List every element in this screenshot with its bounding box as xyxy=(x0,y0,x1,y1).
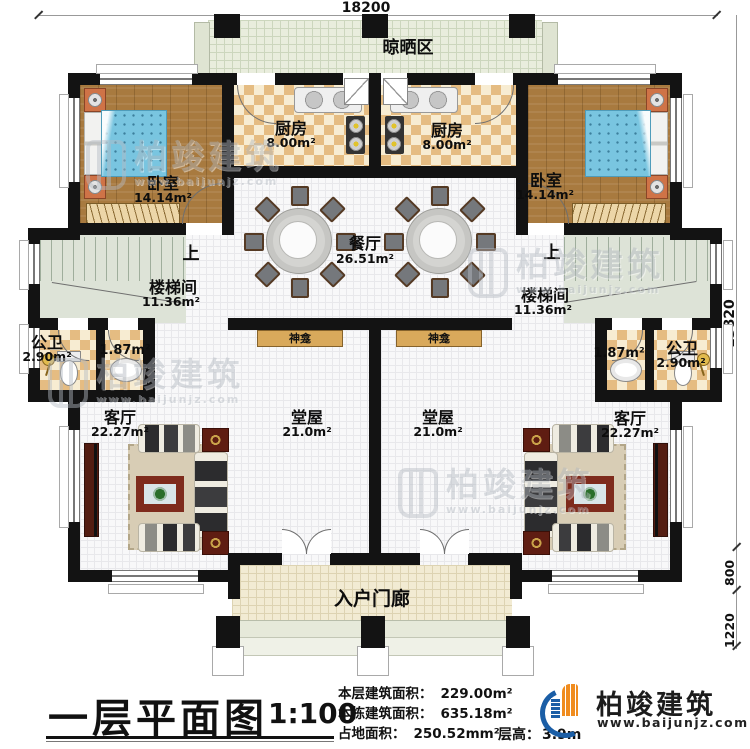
stat-label: 占地面积： xyxy=(338,726,406,742)
wash-basin xyxy=(110,358,142,382)
window-sill xyxy=(683,426,693,528)
shrine-label: 神龛 xyxy=(428,332,450,345)
wall xyxy=(381,166,516,178)
room-area-stairwell: 11.36m² xyxy=(514,304,572,317)
window xyxy=(670,430,682,522)
room-area-bedroom: 14.14m² xyxy=(516,189,574,202)
stair-treads xyxy=(40,237,186,281)
door-opening xyxy=(58,318,88,330)
door-opening xyxy=(475,73,513,85)
stat-row: 占地面积：250.52mm² xyxy=(338,722,500,742)
wall xyxy=(645,330,654,392)
column-base xyxy=(502,646,534,676)
wall xyxy=(68,223,186,235)
dimension-steps: 1220 xyxy=(722,613,737,648)
room-area-washroom: 1.87m² xyxy=(593,347,644,360)
room-area-kitchen: 8.00m² xyxy=(266,137,315,150)
chair xyxy=(291,278,309,298)
tv-cabinet xyxy=(84,443,99,537)
chair xyxy=(291,186,309,206)
dining-table-set xyxy=(406,208,470,272)
wall xyxy=(234,166,369,178)
sofa xyxy=(552,523,614,552)
coffee-table xyxy=(566,476,614,512)
door-opening xyxy=(186,223,222,235)
window-sill xyxy=(723,324,733,374)
door-opening xyxy=(662,318,692,330)
door-opening xyxy=(528,223,564,235)
window xyxy=(100,73,192,85)
round-table-top xyxy=(419,221,457,259)
wall xyxy=(228,553,240,599)
stat-label: 本栋建筑面积： xyxy=(338,706,433,722)
door-opening xyxy=(108,318,138,330)
wall xyxy=(28,228,80,240)
chair xyxy=(431,278,449,298)
wardrobe xyxy=(572,203,666,224)
chair xyxy=(431,186,449,206)
room-area-stairwell: 11.36m² xyxy=(142,296,200,309)
wall xyxy=(670,228,722,240)
chair xyxy=(384,233,404,251)
window-sill xyxy=(548,584,644,594)
column xyxy=(214,14,240,38)
window xyxy=(670,98,682,182)
stat-row: 本栋建筑面积：635.18m² xyxy=(338,702,513,722)
room-area-living: 22.27m² xyxy=(601,427,659,440)
nightstand xyxy=(84,88,106,112)
column-base xyxy=(212,646,244,676)
room-area-hall: 21.0m² xyxy=(413,426,462,439)
wall xyxy=(595,390,722,402)
wall xyxy=(369,73,381,178)
sofa xyxy=(138,523,200,552)
stair-treads xyxy=(564,237,710,281)
stat-label: 本层建筑面积： xyxy=(338,686,433,702)
nightstand xyxy=(84,175,106,199)
window-sill xyxy=(59,426,69,528)
room-area-hall: 21.0m² xyxy=(282,426,331,439)
room-area-washroom: 1.87m² xyxy=(99,344,150,357)
wall xyxy=(330,553,420,565)
nightstand xyxy=(646,175,668,199)
porch-column xyxy=(506,616,530,648)
stat-value: 635.18m² xyxy=(441,706,513,722)
wall xyxy=(28,390,155,402)
bed xyxy=(585,110,651,177)
column-base xyxy=(357,646,389,676)
wall xyxy=(510,553,522,599)
window xyxy=(68,430,80,522)
room-label-porch: 入户门廊 xyxy=(334,590,410,609)
window xyxy=(710,328,722,368)
window xyxy=(552,570,638,582)
end-table xyxy=(202,531,229,555)
room-label-drying: 晾晒区 xyxy=(383,40,434,57)
window-sill xyxy=(96,64,198,74)
window-sill xyxy=(108,584,204,594)
wall xyxy=(68,570,112,582)
floor-height-label: 层高： xyxy=(498,727,540,743)
stat-row: 本层建筑面积：229.00m² xyxy=(338,682,513,702)
window-sill xyxy=(683,94,693,188)
stair-up-label: 上 xyxy=(183,246,200,263)
window xyxy=(112,570,198,582)
room-label-dining: 餐厅 xyxy=(349,236,381,252)
wall xyxy=(96,330,105,392)
column xyxy=(362,14,388,38)
brand-logo-building xyxy=(562,684,578,716)
wash-basin xyxy=(610,358,642,382)
window-sill xyxy=(19,240,29,290)
brand-website: www.baijunjz.com xyxy=(597,715,749,730)
door-opening xyxy=(237,73,275,85)
end-table xyxy=(202,428,229,452)
stove xyxy=(385,116,404,154)
tv-cabinet xyxy=(653,443,668,537)
round-table-top xyxy=(279,221,317,259)
window xyxy=(28,244,40,284)
chair xyxy=(476,233,496,251)
dining-table-set xyxy=(266,208,330,272)
end-table xyxy=(523,428,550,452)
column xyxy=(509,14,535,38)
shrine-console: 神龛 xyxy=(396,330,482,347)
stat-value: 229.00m² xyxy=(441,686,513,702)
dimension-porch: 800 xyxy=(722,560,737,586)
floor-plan: 18200 13820 800 1220 xyxy=(0,0,750,749)
porch-column xyxy=(361,616,385,648)
brand-logo-block xyxy=(551,698,560,718)
room-area-kitchen: 8.00m² xyxy=(422,139,471,152)
end-table xyxy=(523,531,550,555)
nightstand xyxy=(646,88,668,112)
wall xyxy=(369,318,381,565)
stat-value: 250.52mm² xyxy=(414,726,500,742)
room-area-bathroom: 2.90m² xyxy=(22,351,71,364)
brand-logo xyxy=(538,680,592,734)
window xyxy=(710,244,722,284)
wall xyxy=(468,553,512,565)
wall xyxy=(564,223,682,235)
window-sill xyxy=(59,94,69,188)
porch-column xyxy=(216,616,240,648)
room-area-bedroom: 14.14m² xyxy=(134,192,192,205)
door-leaf xyxy=(344,78,369,105)
wardrobe xyxy=(86,203,180,224)
room-area-living: 22.27m² xyxy=(91,426,149,439)
bed xyxy=(101,110,167,177)
title-underline xyxy=(46,741,334,742)
bed-pillows xyxy=(649,112,668,175)
shrine-label: 神龛 xyxy=(289,332,311,345)
wall xyxy=(638,570,682,582)
stair-up-label: 上 xyxy=(544,245,561,262)
title-underline xyxy=(46,736,334,739)
shrine-console: 神龛 xyxy=(257,330,343,347)
window-sill xyxy=(554,64,656,74)
window xyxy=(68,98,80,182)
room-area-dining: 26.51m² xyxy=(336,253,394,266)
wall xyxy=(222,73,234,235)
wall xyxy=(516,73,528,235)
door-opening xyxy=(612,318,642,330)
door-leaf xyxy=(383,78,408,105)
window xyxy=(558,73,650,85)
stove xyxy=(346,116,365,154)
coffee-table xyxy=(136,476,184,512)
chair xyxy=(244,233,264,251)
window-sill xyxy=(723,240,733,290)
room-area-bathroom: 2.90m² xyxy=(656,357,705,370)
